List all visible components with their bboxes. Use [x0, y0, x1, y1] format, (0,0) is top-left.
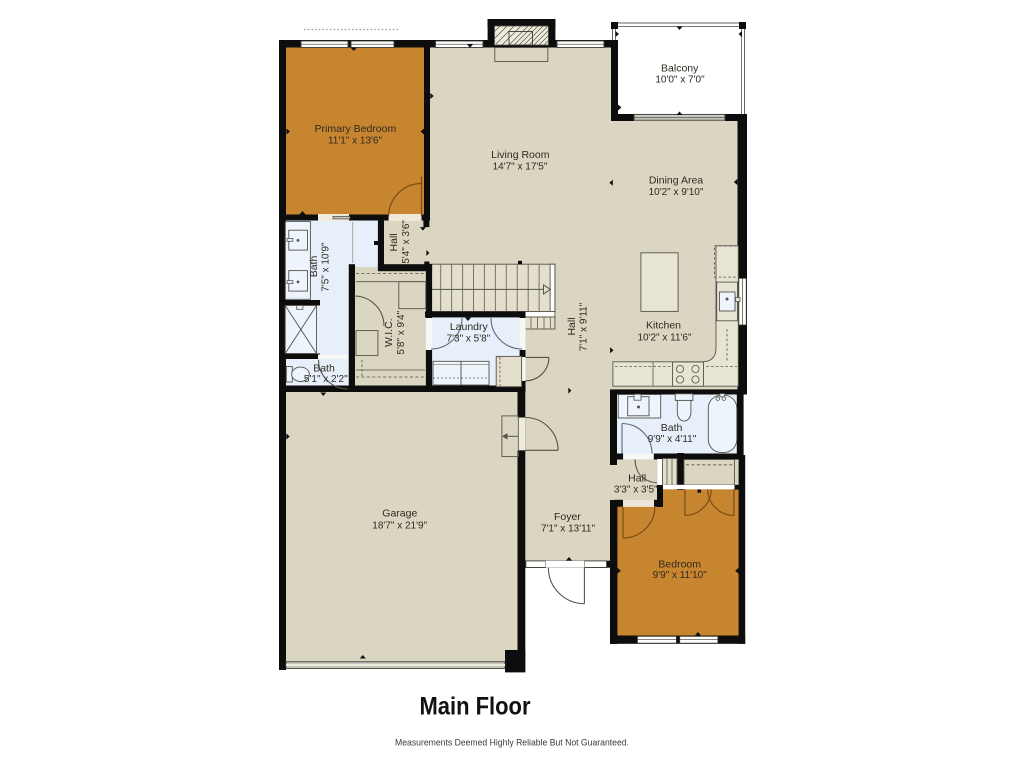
- svg-text:Garage: Garage: [382, 508, 417, 520]
- svg-text:5'4" x 3'6": 5'4" x 3'6": [401, 220, 412, 264]
- svg-text:Bath: Bath: [661, 422, 683, 434]
- svg-text:7'3" x 5'8": 7'3" x 5'8": [447, 334, 491, 345]
- svg-text:5'8" x 9'4": 5'8" x 9'4": [396, 310, 407, 354]
- svg-text:Hall: Hall: [566, 317, 578, 335]
- svg-text:Bath: Bath: [308, 256, 320, 278]
- svg-text:10'2" x 9'10": 10'2" x 9'10": [649, 187, 704, 198]
- svg-text:3'3" x 3'5": 3'3" x 3'5": [614, 485, 658, 496]
- svg-text:7'1" x 13'11": 7'1" x 13'11": [541, 524, 596, 535]
- svg-text:5'1" x 2'2": 5'1" x 2'2": [304, 374, 348, 385]
- svg-text:Kitchen: Kitchen: [646, 320, 681, 332]
- svg-text:11'1" x 13'6": 11'1" x 13'6": [328, 136, 383, 147]
- svg-text:7'1" x 9'11": 7'1" x 9'11": [578, 302, 589, 351]
- svg-text:Laundry: Laundry: [450, 321, 489, 333]
- svg-text:7'5" x 10'9": 7'5" x 10'9": [320, 242, 331, 292]
- svg-text:Bath: Bath: [313, 363, 335, 375]
- svg-text:Measurements Deemed Highly Rel: Measurements Deemed Highly Reliable But …: [395, 738, 629, 749]
- svg-text:Primary Bedroom: Primary Bedroom: [315, 123, 397, 135]
- svg-text:Dining Area: Dining Area: [649, 175, 703, 187]
- svg-text:10'2" x 11'6": 10'2" x 11'6": [637, 333, 692, 344]
- svg-text:Foyer: Foyer: [554, 511, 581, 523]
- svg-text:Balcony: Balcony: [661, 63, 699, 75]
- svg-text:Hall: Hall: [388, 233, 400, 251]
- svg-text:W.I.C.: W.I.C.: [383, 318, 395, 347]
- svg-text:10'0" x 7'0": 10'0" x 7'0": [655, 74, 705, 85]
- svg-text:9'9" x 4'11": 9'9" x 4'11": [648, 434, 697, 445]
- svg-text:9'9" x 11'10": 9'9" x 11'10": [653, 570, 708, 581]
- svg-text:Hall: Hall: [628, 473, 646, 485]
- svg-text:18'7" x 21'9": 18'7" x 21'9": [372, 521, 427, 532]
- svg-text:14'7" x 17'5": 14'7" x 17'5": [493, 162, 548, 173]
- svg-text:Bedroom: Bedroom: [658, 559, 701, 571]
- svg-text:Main Floor: Main Floor: [420, 693, 531, 721]
- svg-text:Living Room: Living Room: [491, 149, 550, 161]
